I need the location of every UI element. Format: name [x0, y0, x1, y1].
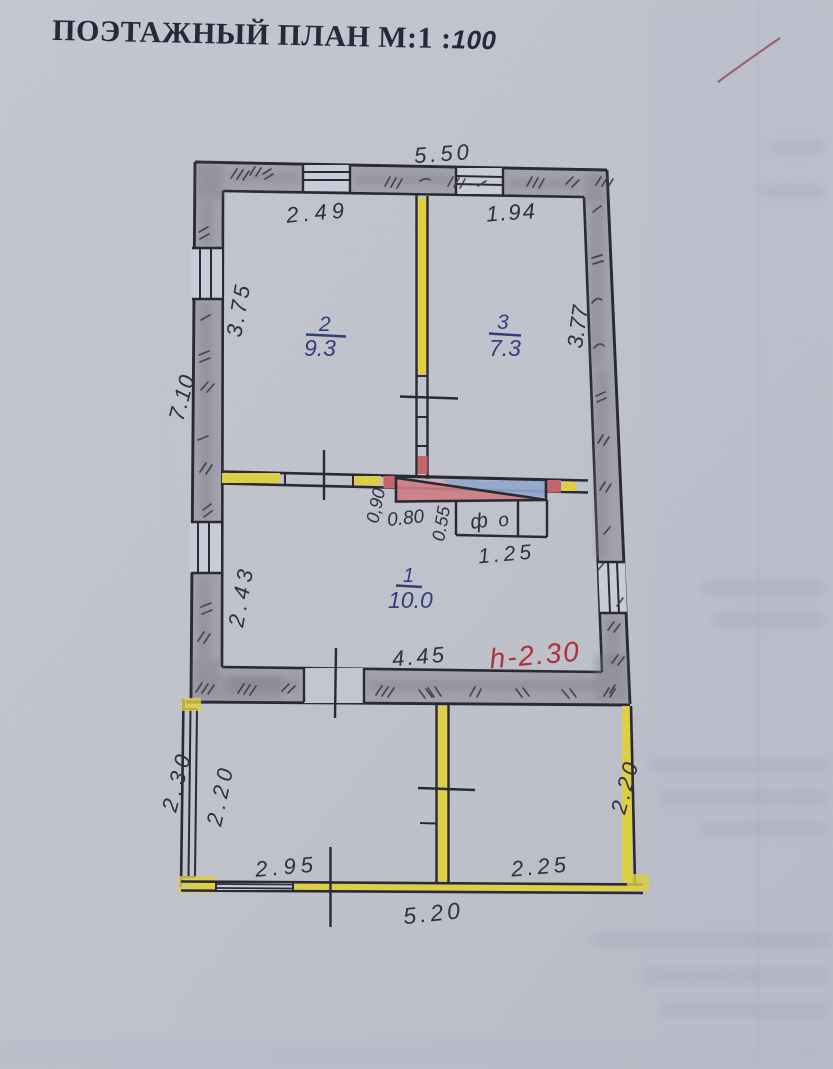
svg-text:10.0: 10.0 [388, 587, 433, 613]
svg-text:9.3: 9.3 [304, 335, 336, 361]
svg-text:0.80: 0.80 [386, 506, 425, 531]
svg-text:7.3: 7.3 [489, 335, 521, 361]
svg-text:2.25: 2.25 [509, 852, 571, 882]
svg-text:3: 3 [497, 311, 509, 334]
svg-text:5.50: 5.50 [413, 139, 473, 168]
svg-text:1.94: 1.94 [485, 198, 537, 226]
svg-text:4.45: 4.45 [391, 642, 448, 672]
svg-text:ф: ф [469, 509, 490, 534]
svg-text:2: 2 [318, 313, 331, 336]
svg-text:1: 1 [403, 565, 414, 587]
